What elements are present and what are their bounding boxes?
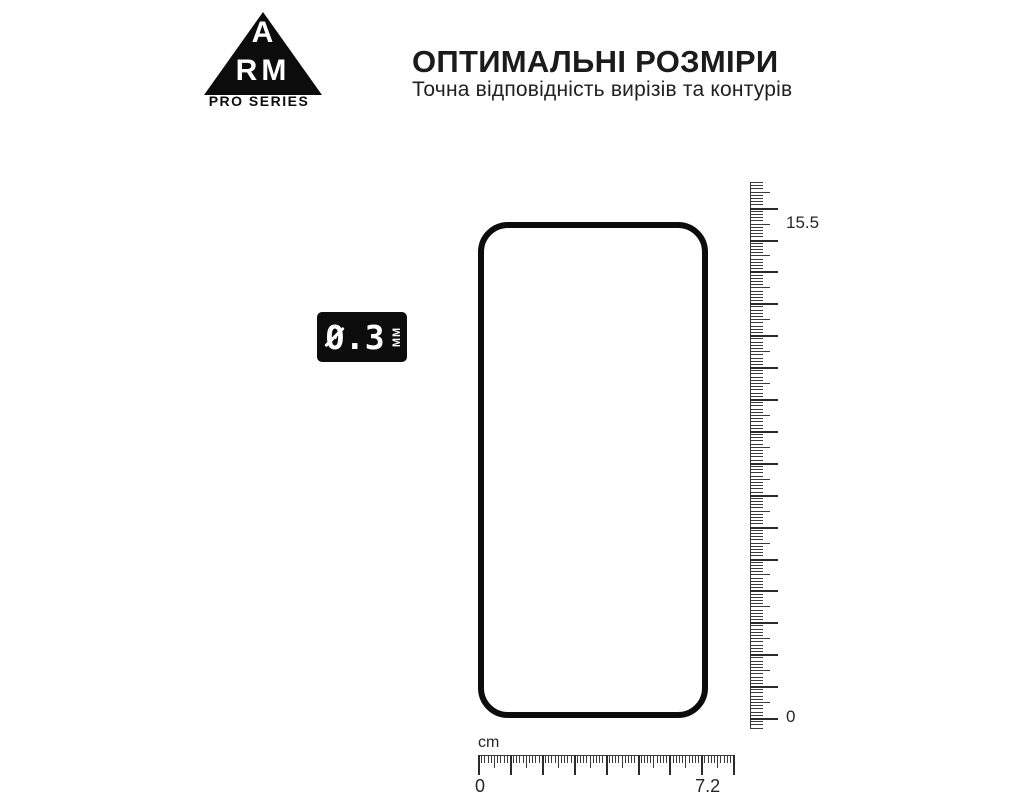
- horizontal-ruler-tick: [494, 755, 495, 768]
- vertical-ruler-tick: [750, 211, 763, 212]
- vertical-ruler-tick: [750, 208, 778, 210]
- vertical-ruler-tick: [750, 243, 763, 244]
- vertical-ruler-tick: [750, 488, 763, 489]
- horizontal-ruler-tick: [564, 755, 565, 763]
- vertical-ruler-tick: [750, 571, 763, 572]
- horizontal-ruler-tick: [650, 755, 651, 763]
- vertical-ruler-tick: [750, 255, 770, 256]
- vertical-ruler-tick: [750, 619, 763, 620]
- horizontal-ruler-tick: [682, 755, 683, 763]
- vertical-ruler-tick: [750, 523, 763, 524]
- thickness-unit-text: ММ: [391, 327, 403, 347]
- vertical-ruler-tick: [750, 677, 763, 678]
- vertical-ruler-tick: [750, 447, 770, 448]
- vertical-ruler-tick: [750, 606, 770, 607]
- vertical-ruler-tick: [750, 224, 770, 225]
- vertical-ruler-tick: [750, 721, 763, 722]
- vertical-ruler-tick: [750, 641, 763, 642]
- horizontal-ruler-tick: [526, 755, 527, 768]
- vertical-ruler-tick: [750, 552, 763, 553]
- horizontal-ruler-tick: [484, 755, 485, 763]
- horizontal-ruler-tick: [647, 755, 648, 763]
- vertical-ruler-tick: [750, 638, 770, 639]
- horizontal-ruler-tick: [622, 755, 623, 768]
- vertical-ruler-tick: [750, 313, 763, 314]
- horizontal-ruler-tick: [618, 755, 619, 763]
- horizontal-ruler-tick: [596, 755, 597, 763]
- vertical-ruler-tick: [750, 574, 770, 575]
- vertical-ruler-tick: [750, 405, 763, 406]
- vertical-ruler-tick: [750, 351, 770, 352]
- vertical-ruler-tick: [750, 354, 763, 355]
- horizontal-ruler-tick: [644, 755, 645, 763]
- horizontal-ruler-tick: [532, 755, 533, 763]
- vertical-ruler-tick: [750, 543, 770, 544]
- vertical-ruler-tick: [750, 616, 763, 617]
- vertical-ruler-tick: [750, 699, 763, 700]
- vertical-ruler-tick: [750, 476, 763, 477]
- vertical-ruler-tick: [750, 399, 778, 401]
- vertical-ruler-tick: [750, 463, 778, 465]
- vertical-ruler-tick: [750, 603, 763, 604]
- horizontal-ruler-tick: [714, 755, 715, 763]
- horizontal-ruler-tick: [481, 755, 482, 763]
- vertical-ruler-tick: [750, 629, 763, 630]
- horizontal-ruler-tick: [555, 755, 556, 763]
- vertical-ruler-tick: [750, 546, 763, 547]
- horizontal-ruler-tick: [516, 755, 517, 763]
- vertical-ruler-tick: [750, 492, 763, 493]
- horizontal-ruler-tick: [660, 755, 661, 763]
- horizontal-ruler-tick: [631, 755, 632, 763]
- page-title: ОПТИМАЛЬНІ РОЗМІРИ: [412, 44, 778, 80]
- vertical-ruler-tick: [750, 530, 763, 531]
- vertical-ruler-tick: [750, 670, 770, 671]
- thickness-unit: ММ: [390, 312, 404, 362]
- vertical-ruler-tick: [750, 590, 778, 592]
- vertical-ruler-tick: [750, 533, 763, 534]
- horizontal-ruler-tick: [535, 755, 536, 763]
- vertical-ruler-tick: [750, 498, 763, 499]
- horizontal-ruler-tick: [609, 755, 610, 763]
- vertical-ruler-tick: [750, 724, 763, 725]
- horizontal-ruler-tick: [504, 755, 505, 763]
- vertical-ruler-tick: [750, 361, 763, 362]
- vertical-ruler-tick: [750, 507, 763, 508]
- vertical-ruler-tick: [750, 712, 763, 713]
- vertical-ruler-tick: [750, 364, 763, 365]
- vertical-ruler-tick: [750, 425, 763, 426]
- horizontal-ruler-tick: [673, 755, 674, 763]
- vertical-ruler-tick: [750, 262, 763, 263]
- vertical-ruler-tick: [750, 485, 763, 486]
- vertical-ruler-tick: [750, 370, 763, 371]
- vertical-ruler-tick: [750, 415, 770, 416]
- vertical-ruler-tick: [750, 386, 763, 387]
- horizontal-ruler-tick: [657, 755, 658, 763]
- horizontal-ruler-tick: [695, 755, 696, 763]
- horizontal-ruler-zero-label: 0: [475, 776, 485, 797]
- horizontal-ruler-tick: [523, 755, 524, 763]
- horizontal-ruler-tick: [638, 755, 640, 775]
- horizontal-ruler-tick: [583, 755, 584, 763]
- vertical-ruler-tick: [750, 692, 763, 693]
- vertical-ruler-tick: [750, 300, 763, 301]
- vertical-ruler-tick: [750, 514, 763, 515]
- vertical-ruler-tick: [750, 428, 763, 429]
- logo-letter-a: A: [204, 18, 322, 48]
- thickness-badge: 0.3 ММ: [317, 312, 407, 362]
- vertical-ruler-tick: [750, 718, 778, 720]
- vertical-ruler-tick: [750, 335, 778, 337]
- horizontal-ruler-tick: [676, 755, 677, 763]
- vertical-ruler-tick: [750, 504, 763, 505]
- horizontal-ruler-tick: [653, 755, 654, 768]
- vertical-ruler-tick: [750, 220, 763, 221]
- vertical-ruler-tick: [750, 453, 763, 454]
- vertical-ruler-tick: [750, 201, 763, 202]
- horizontal-ruler-tick: [561, 755, 562, 763]
- vertical-ruler-tick: [750, 549, 763, 550]
- vertical-ruler-tick: [750, 431, 778, 433]
- vertical-ruler-tick: [750, 284, 763, 285]
- vertical-ruler-tick: [750, 329, 763, 330]
- vertical-ruler-tick: [750, 316, 763, 317]
- horizontal-ruler-tick: [708, 755, 709, 763]
- horizontal-ruler: cm 0 7.2: [478, 755, 778, 800]
- vertical-ruler-tick: [750, 291, 763, 292]
- vertical-ruler-tick: [750, 625, 763, 626]
- vertical-ruler-tick: [750, 227, 763, 228]
- vertical-ruler-tick: [750, 421, 763, 422]
- vertical-ruler-tick: [750, 482, 763, 483]
- vertical-ruler-tick: [750, 393, 763, 394]
- horizontal-ruler-tick: [590, 755, 591, 768]
- vertical-ruler-tick: [750, 479, 770, 480]
- vertical-ruler-tick: [750, 728, 763, 729]
- horizontal-ruler-tick: [717, 755, 718, 768]
- vertical-ruler-baseline: [750, 182, 751, 728]
- vertical-ruler-tick: [750, 610, 763, 611]
- vertical-ruler-tick: [750, 450, 763, 451]
- vertical-ruler-tick: [750, 661, 763, 662]
- vertical-ruler-tick: [750, 581, 763, 582]
- vertical-ruler-tick: [750, 306, 763, 307]
- horizontal-ruler-tick: [497, 755, 498, 763]
- vertical-ruler-tick: [750, 233, 763, 234]
- vertical-ruler-tick: [750, 367, 778, 369]
- horizontal-ruler-tick: [513, 755, 514, 763]
- vertical-ruler-tick: [750, 252, 763, 253]
- vertical-ruler-tick: [750, 622, 778, 624]
- vertical-ruler-tick: [750, 495, 778, 497]
- vertical-ruler-tick: [750, 271, 778, 273]
- vertical-ruler-tick: [750, 667, 763, 668]
- horizontal-ruler-tick: [491, 755, 492, 763]
- vertical-ruler-tick: [750, 182, 763, 183]
- horizontal-ruler-tick: [558, 755, 559, 768]
- horizontal-ruler-tick: [539, 755, 540, 763]
- vertical-ruler-tick: [750, 389, 763, 390]
- vertical-ruler-tick: [750, 635, 763, 636]
- vertical-ruler-tick: [750, 303, 778, 305]
- vertical-ruler-tick: [750, 319, 770, 320]
- vertical-ruler-tick: [750, 702, 770, 703]
- vertical-ruler-tick: [750, 326, 763, 327]
- horizontal-ruler-tick: [727, 755, 728, 763]
- horizontal-ruler-tick: [488, 755, 489, 763]
- vertical-ruler-tick: [750, 584, 763, 585]
- vertical-ruler-tick: [750, 689, 763, 690]
- vertical-ruler-tick: [750, 568, 763, 569]
- horizontal-ruler-tick: [593, 755, 594, 763]
- vertical-ruler-tick: [750, 348, 763, 349]
- horizontal-ruler-tick: [663, 755, 664, 763]
- horizontal-ruler-tick: [701, 755, 703, 775]
- horizontal-ruler-tick: [628, 755, 629, 763]
- horizontal-ruler-tick: [698, 755, 699, 763]
- vertical-ruler-tick: [750, 565, 763, 566]
- vertical-ruler-tick: [750, 654, 778, 656]
- horizontal-ruler-tick: [478, 755, 480, 775]
- vertical-ruler-tick: [750, 402, 763, 403]
- vertical-ruler-tick: [750, 409, 763, 410]
- horizontal-ruler-tick: [542, 755, 544, 775]
- vertical-ruler-tick: [750, 444, 763, 445]
- horizontal-ruler-tick: [507, 755, 508, 763]
- vertical-ruler-tick: [750, 198, 763, 199]
- horizontal-ruler-tick: [551, 755, 552, 763]
- vertical-ruler-tick: [750, 265, 763, 266]
- vertical-ruler-tick: [750, 373, 763, 374]
- horizontal-ruler-tick: [669, 755, 671, 775]
- vertical-ruler-tick: [750, 437, 763, 438]
- vertical-ruler-tick: [750, 195, 763, 196]
- vertical-ruler-tick: [750, 632, 763, 633]
- vertical-ruler-tick: [750, 705, 763, 706]
- vertical-ruler-tick: [750, 696, 763, 697]
- arm-logo-triangle-icon: A RM: [204, 12, 322, 95]
- horizontal-ruler-tick: [615, 755, 616, 763]
- horizontal-ruler-tick: [580, 755, 581, 763]
- horizontal-ruler-tick: [692, 755, 693, 763]
- horizontal-ruler-tick: [711, 755, 712, 763]
- vertical-ruler-tick: [750, 456, 763, 457]
- vertical-ruler-tick: [750, 686, 778, 688]
- vertical-ruler-tick: [750, 600, 763, 601]
- vertical-ruler-tick: [750, 249, 763, 250]
- vertical-ruler-tick: [750, 204, 763, 205]
- vertical-ruler-tick: [750, 562, 763, 563]
- horizontal-ruler-max-label: 7.2: [695, 776, 720, 797]
- horizontal-ruler-tick: [625, 755, 626, 763]
- vertical-ruler-tick: [750, 587, 763, 588]
- vertical-ruler-tick: [750, 517, 763, 518]
- vertical-ruler-tick: [750, 188, 763, 189]
- vertical-ruler-tick: [750, 230, 763, 231]
- vertical-ruler-max-label: 15.5: [786, 214, 819, 232]
- vertical-ruler-tick: [750, 192, 770, 193]
- horizontal-ruler-tick: [519, 755, 520, 763]
- vertical-ruler-tick: [750, 578, 763, 579]
- vertical-ruler-tick: [750, 278, 763, 279]
- horizontal-ruler-tick: [586, 755, 587, 763]
- horizontal-ruler-tick: [529, 755, 530, 763]
- vertical-ruler-tick: [750, 377, 763, 378]
- vertical-ruler-tick: [750, 664, 763, 665]
- horizontal-ruler-tick: [548, 755, 549, 763]
- vertical-ruler-tick: [750, 715, 763, 716]
- vertical-ruler-tick: [750, 310, 763, 311]
- horizontal-ruler-tick: [704, 755, 705, 763]
- vertical-ruler-tick: [750, 520, 763, 521]
- vertical-ruler-tick: [750, 418, 763, 419]
- vertical-ruler-tick: [750, 275, 763, 276]
- horizontal-ruler-tick: [641, 755, 642, 763]
- horizontal-ruler-tick: [634, 755, 635, 763]
- vertical-ruler-tick: [750, 185, 763, 186]
- vertical-ruler-tick: [750, 281, 763, 282]
- screen-protector-outline: [478, 222, 708, 718]
- vertical-ruler-tick: [750, 322, 763, 323]
- vertical-ruler-tick: [750, 460, 763, 461]
- horizontal-ruler-tick: [730, 755, 731, 763]
- vertical-ruler-tick: [750, 536, 763, 537]
- horizontal-ruler-tick: [599, 755, 600, 763]
- vertical-ruler-tick: [750, 332, 763, 333]
- vertical-ruler-tick: [750, 651, 763, 652]
- horizontal-ruler-tick: [606, 755, 608, 775]
- vertical-ruler-tick: [750, 657, 763, 658]
- horizontal-ruler-tick: [545, 755, 546, 763]
- vertical-ruler-tick: [750, 236, 763, 237]
- horizontal-ruler-unit-label: cm: [478, 734, 499, 752]
- horizontal-ruler-tick: [666, 755, 667, 763]
- horizontal-ruler-tick: [679, 755, 680, 763]
- vertical-ruler-tick: [750, 338, 763, 339]
- vertical-ruler-tick: [750, 594, 763, 595]
- product-diagram-page: A RM PRO SERIES ОПТИМАЛЬНІ РОЗМІРИ Точна…: [0, 0, 1024, 800]
- vertical-ruler-tick: [750, 645, 763, 646]
- vertical-ruler-tick: [750, 358, 763, 359]
- horizontal-ruler-tick: [733, 755, 735, 775]
- vertical-ruler-tick: [750, 246, 763, 247]
- vertical-ruler-tick: [750, 380, 763, 381]
- vertical-ruler-tick: [750, 469, 763, 470]
- horizontal-ruler-tick: [500, 755, 501, 763]
- vertical-ruler-tick: [750, 472, 763, 473]
- vertical-ruler-tick: [750, 539, 763, 540]
- vertical-ruler-tick: [750, 396, 763, 397]
- logo-pro-series-label: PRO SERIES: [192, 93, 326, 109]
- vertical-ruler-tick: [750, 597, 763, 598]
- vertical-ruler-zero-label: 0: [786, 708, 795, 726]
- horizontal-ruler-tick: [602, 755, 603, 763]
- horizontal-ruler-tick: [567, 755, 568, 763]
- vertical-ruler-tick: [750, 345, 763, 346]
- logo-letters-rm: RM: [204, 56, 322, 86]
- vertical-ruler-tick: [750, 683, 763, 684]
- vertical-ruler-tick: [750, 412, 763, 413]
- vertical-ruler-tick: [750, 613, 763, 614]
- horizontal-ruler-tick: [685, 755, 686, 768]
- vertical-ruler-tick: [750, 555, 763, 556]
- vertical-ruler-tick: [750, 673, 763, 674]
- horizontal-ruler-tick: [720, 755, 721, 763]
- vertical-ruler-tick: [750, 680, 763, 681]
- horizontal-ruler-tick: [724, 755, 725, 763]
- vertical-ruler-tick: [750, 240, 778, 242]
- vertical-ruler-tick: [750, 559, 778, 561]
- vertical-ruler-tick: [750, 259, 763, 260]
- horizontal-ruler-tick: [574, 755, 576, 775]
- vertical-ruler-tick: [750, 214, 763, 215]
- horizontal-ruler-tick: [612, 755, 613, 763]
- vertical-ruler-tick: [750, 342, 763, 343]
- vertical-ruler-tick: [750, 383, 770, 384]
- horizontal-ruler-tick: [689, 755, 690, 763]
- vertical-ruler-tick: [750, 440, 763, 441]
- vertical-ruler-tick: [750, 217, 763, 218]
- vertical-ruler-tick: [750, 294, 763, 295]
- horizontal-ruler-tick: [577, 755, 578, 763]
- horizontal-ruler-tick: [571, 755, 572, 763]
- vertical-ruler: 15.5 0: [750, 0, 840, 800]
- vertical-ruler-tick: [750, 287, 770, 288]
- vertical-ruler-tick: [750, 466, 763, 467]
- vertical-ruler-tick: [750, 648, 763, 649]
- horizontal-ruler-tick: [510, 755, 512, 775]
- vertical-ruler-tick: [750, 297, 763, 298]
- vertical-ruler-tick: [750, 434, 763, 435]
- vertical-ruler-tick: [750, 527, 778, 529]
- vertical-ruler-tick: [750, 501, 763, 502]
- vertical-ruler-tick: [750, 708, 763, 709]
- vertical-ruler-tick: [750, 268, 763, 269]
- vertical-ruler-tick: [750, 511, 770, 512]
- page-subtitle: Точна відповідність вирізів та контурів: [412, 78, 792, 102]
